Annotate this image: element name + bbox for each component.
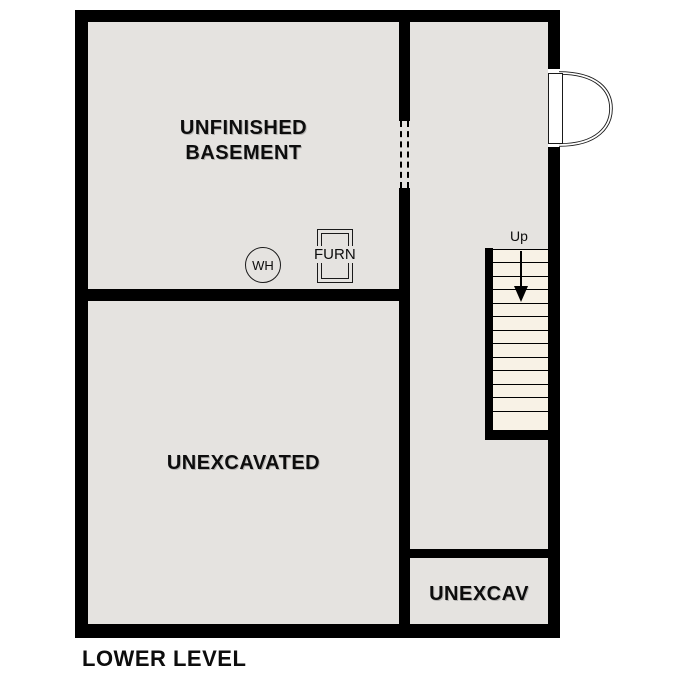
unexcavated-room-label: UNEXCAVATED: [88, 451, 399, 476]
wall-bottom: [75, 624, 560, 638]
plan-title: LOWER LEVEL: [82, 646, 246, 672]
wall-middle-lower: [399, 188, 410, 624]
dashed-opening-line-left: [400, 121, 402, 188]
door-leaf: [548, 73, 563, 144]
stairs-direction-arrow-shaft: [520, 251, 523, 288]
wall-middle-upper: [399, 10, 410, 121]
stair-tread: [493, 304, 548, 318]
stair-tread: [493, 371, 548, 385]
wall-basement-divider: [75, 289, 410, 301]
stair-tread: [493, 317, 548, 331]
water-heater-icon: WH: [245, 247, 281, 283]
water-heater-label: WH: [252, 258, 274, 273]
stair-tread: [493, 385, 548, 399]
wall-left: [75, 10, 88, 638]
floor-plan-canvas: Up WH FURN UNFINISHED BASEMENT UNEXCAVAT…: [0, 0, 687, 687]
stairs-direction-arrow-head: [514, 286, 528, 302]
stair-stringer-wall: [485, 248, 493, 440]
wall-top: [75, 10, 560, 22]
wall-right-lower: [548, 147, 560, 638]
stair-tread: [493, 331, 548, 345]
stair-tread: [493, 344, 548, 358]
stair-tread: [493, 358, 548, 372]
stair-bottom-wall: [485, 430, 558, 440]
wall-unexcav-top: [399, 549, 560, 558]
unexcav-small-room-label: UNEXCAV: [410, 582, 548, 607]
basement-room-label: UNFINISHED BASEMENT: [88, 116, 399, 166]
dashed-opening-line-right: [407, 121, 409, 188]
stairs-up-label: Up: [500, 228, 538, 244]
stair-tread: [493, 398, 548, 412]
furnace-label: FURN: [313, 246, 357, 263]
